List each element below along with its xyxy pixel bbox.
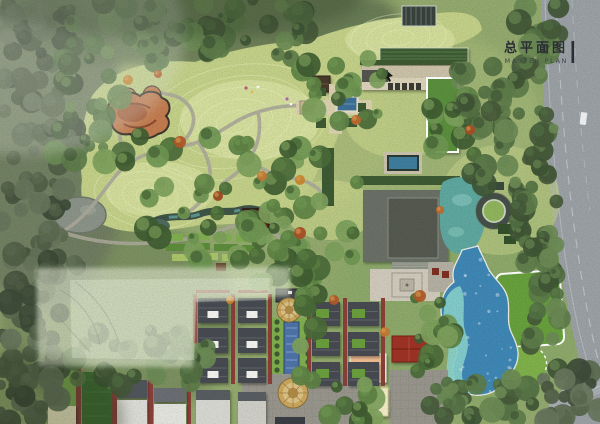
site-plan-canvas: 总平面图 MASTER PLAN [0,0,600,424]
plan-title-en: MASTER PLAN [505,57,568,65]
master-plan-stage: 总平面图 MASTER PLAN [0,0,600,424]
plan-title-cn: 总平面图 [504,40,568,56]
title-divider-bar [572,41,575,63]
plan-title-block: 总平面图 MASTER PLAN [504,40,574,65]
